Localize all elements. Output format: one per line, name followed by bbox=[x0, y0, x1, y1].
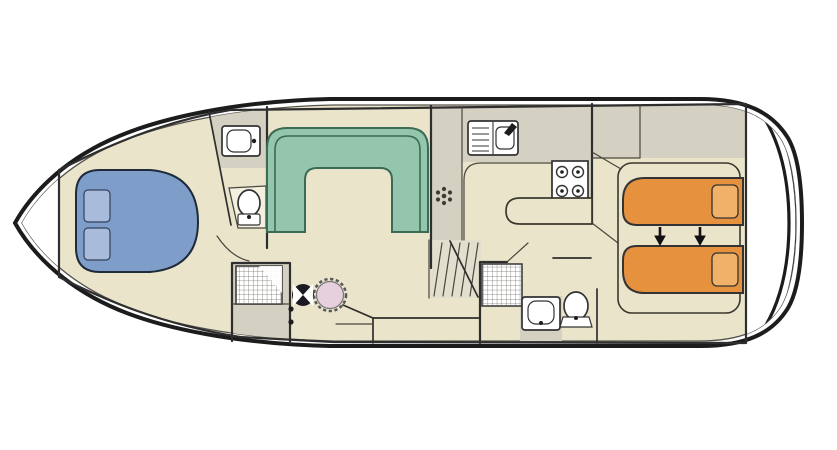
galley-partition-strip bbox=[431, 107, 462, 240]
deck-plan-canvas bbox=[0, 0, 837, 450]
aft-cabin-wardrobe-zone bbox=[592, 104, 746, 158]
bow-anchor-locker bbox=[0, 95, 59, 355]
pillow-bottom bbox=[712, 253, 738, 286]
pillow-top bbox=[712, 185, 738, 218]
galley-sink-drainer-icon bbox=[468, 121, 518, 155]
shower-tray-icon bbox=[236, 266, 282, 304]
counter-extension bbox=[506, 198, 592, 224]
double-bed-pillow-bottom bbox=[84, 228, 110, 260]
helm-seat-icon bbox=[292, 284, 314, 306]
double-bed-pillow-top bbox=[84, 190, 110, 222]
washbasin-icon bbox=[222, 126, 260, 156]
aft-washbasin-icon bbox=[522, 297, 560, 330]
aft-shower-tray-icon bbox=[482, 264, 522, 306]
bow-cabin bbox=[76, 170, 198, 272]
boat-deck-plan bbox=[0, 0, 837, 450]
